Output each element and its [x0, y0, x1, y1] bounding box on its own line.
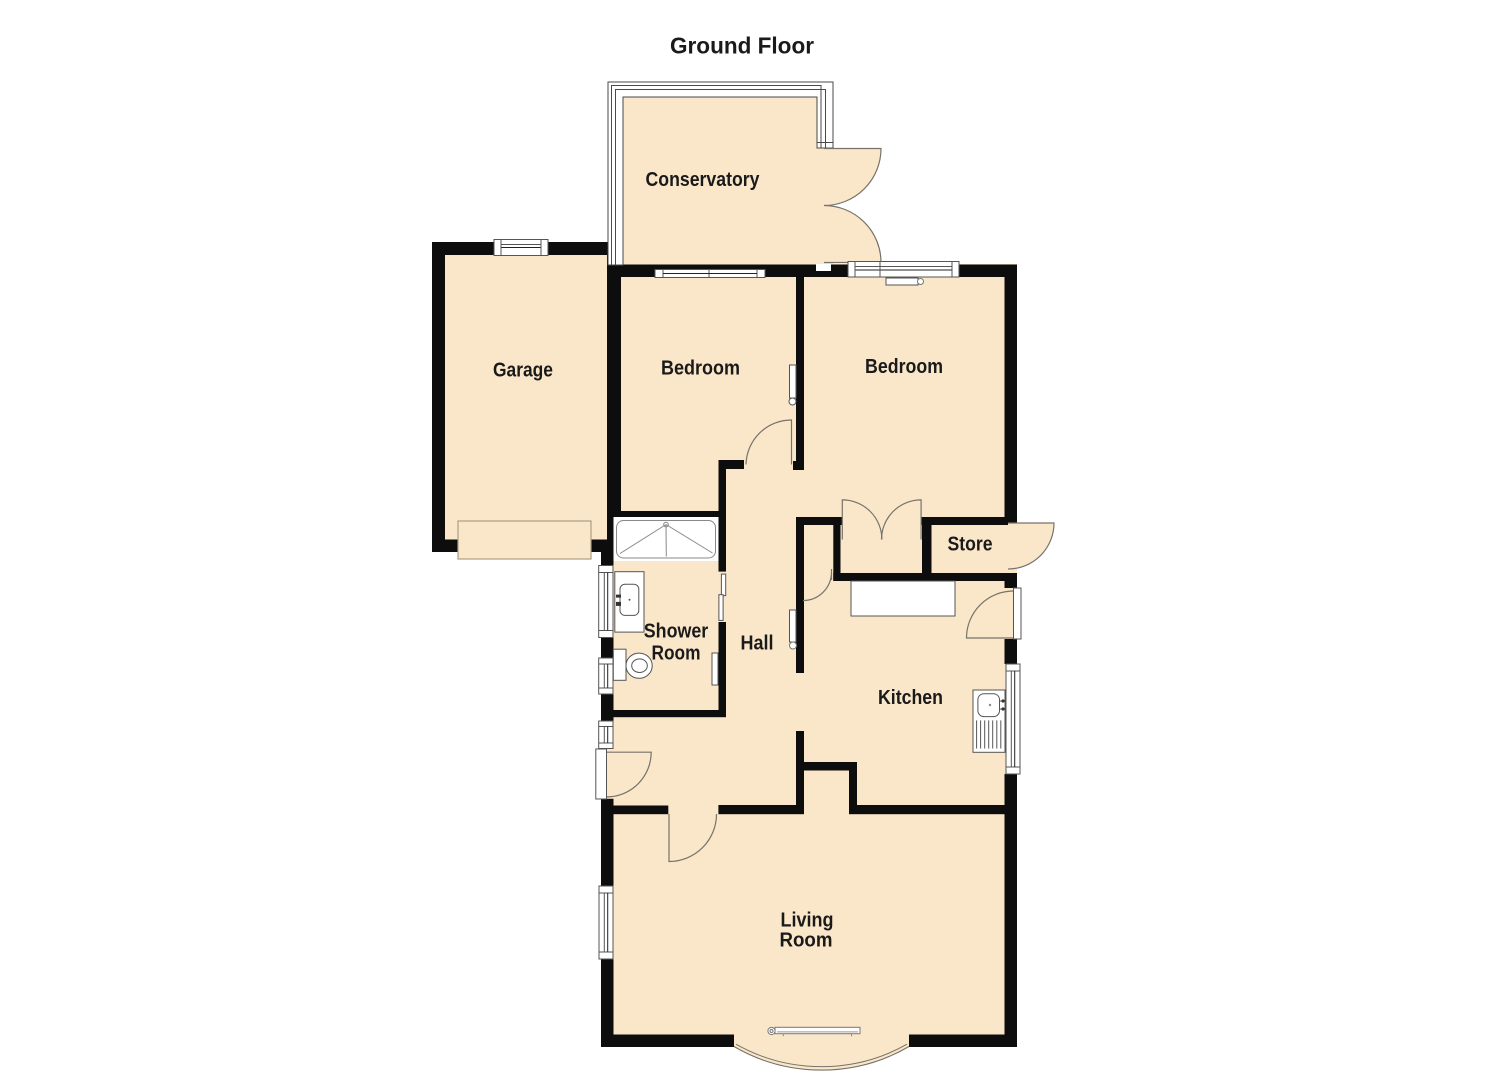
svg-text:Bedroom: Bedroom: [661, 358, 740, 380]
svg-text:Ground Floor: Ground Floor: [670, 33, 814, 59]
svg-text:Living: Living: [781, 910, 834, 932]
svg-text:Store: Store: [948, 534, 993, 556]
svg-text:Conservatory: Conservatory: [646, 169, 761, 191]
svg-text:Room: Room: [780, 930, 833, 952]
svg-text:Shower: Shower: [644, 621, 709, 643]
svg-text:Room: Room: [652, 643, 701, 665]
svg-text:Bedroom: Bedroom: [865, 356, 943, 378]
svg-text:Kitchen: Kitchen: [878, 687, 943, 709]
svg-text:Garage: Garage: [493, 360, 553, 382]
svg-text:Hall: Hall: [741, 633, 774, 655]
